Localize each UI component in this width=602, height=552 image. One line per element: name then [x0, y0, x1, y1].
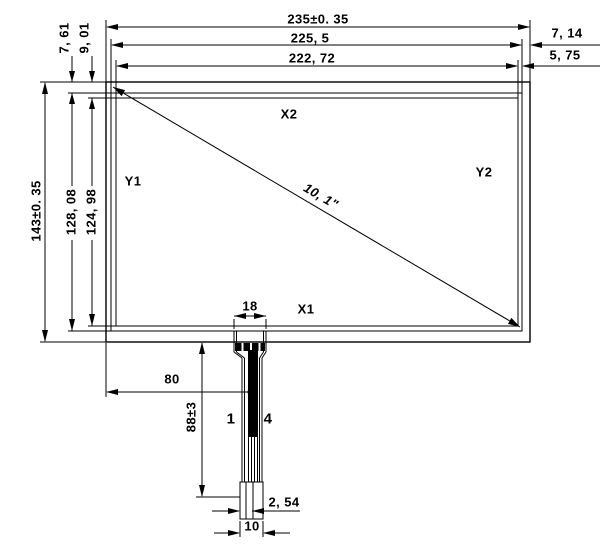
dim-margin-top-a: 7, 61 — [58, 23, 71, 54]
label-y2: Y2 — [476, 166, 493, 179]
pin-last-label: 4 — [264, 412, 273, 427]
drawing-canvas — [0, 0, 602, 552]
dim-margin-top-b: 9, 01 — [78, 23, 91, 54]
label-y1: Y1 — [125, 175, 142, 188]
panel-outline — [106, 82, 530, 342]
dim-pin-pitch: 2, 54 — [269, 496, 300, 509]
dim-height-active: 124, 98 — [85, 189, 98, 235]
dim-margin-right-a: 7, 14 — [552, 27, 583, 40]
connector — [240, 482, 263, 519]
label-x2: X2 — [281, 108, 298, 121]
dim-height-overall: 143±0. 35 — [30, 180, 43, 241]
diagonal-line — [113, 87, 520, 327]
dim-width-overall: 235±0. 35 — [287, 13, 348, 26]
active-area-outline — [111, 93, 522, 331]
dim-width-outer: 225, 5 — [291, 32, 330, 45]
dim-tail-offset: 80 — [164, 373, 179, 386]
dim-width-active: 222, 72 — [289, 52, 335, 65]
dim-height-outer: 128, 08 — [65, 189, 78, 235]
fpc-tail — [234, 331, 266, 482]
dim-connector-width: 10 — [244, 520, 259, 533]
dim-margin-right-b: 5, 75 — [550, 49, 581, 62]
touch-panel-drawing: 235±0. 35 225, 5 222, 72 7, 14 5, 75 7, … — [0, 0, 602, 552]
label-x1: X1 — [298, 303, 315, 316]
pin-first-label: 1 — [227, 412, 236, 427]
dim-tail-length: 88±3 — [185, 402, 198, 432]
dim-tail-width: 18 — [242, 300, 257, 313]
